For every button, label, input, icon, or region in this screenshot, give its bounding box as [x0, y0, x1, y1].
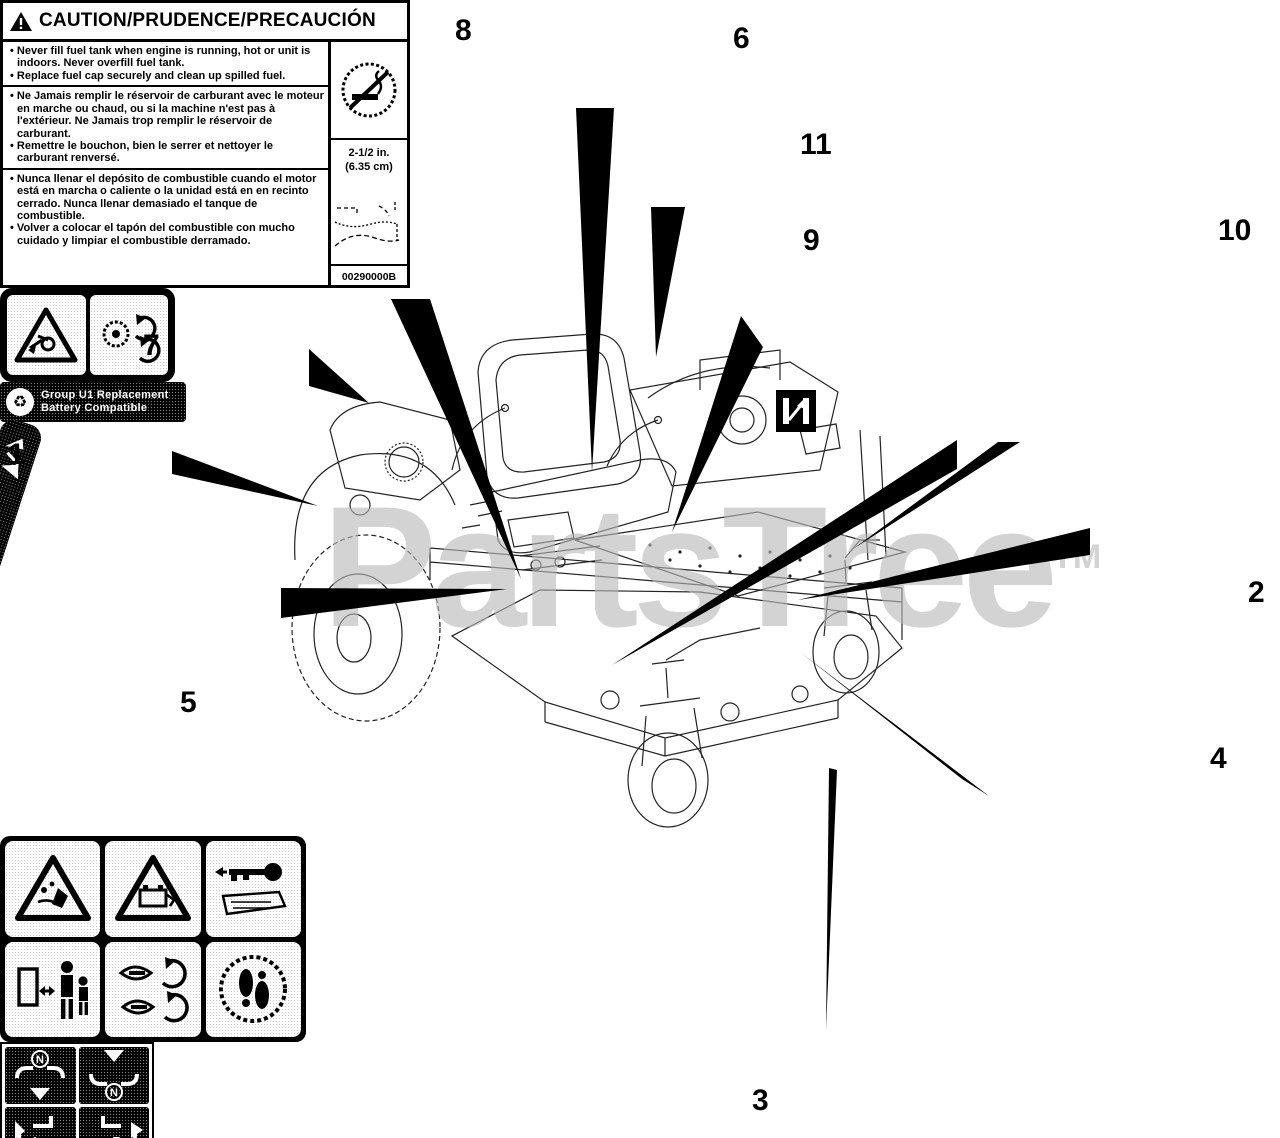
- leader-lines: [0, 0, 1280, 1138]
- callout-9[interactable]: 9: [803, 226, 820, 256]
- callout-5[interactable]: 5: [180, 688, 197, 718]
- callout-2[interactable]: 2: [1248, 578, 1265, 608]
- lever-slot-icon: [776, 390, 816, 432]
- callout-4[interactable]: 4: [1210, 744, 1227, 774]
- callout-8[interactable]: 8: [455, 16, 472, 46]
- callout-7[interactable]: 7: [143, 331, 160, 361]
- callout-10[interactable]: 10: [1218, 216, 1251, 246]
- callout-6[interactable]: 6: [733, 24, 750, 54]
- callout-11[interactable]: 11: [800, 130, 832, 160]
- callout-3[interactable]: 3: [752, 1086, 769, 1116]
- decals-parts-diagram: PartsTreeTM CAUTION/PRUDENCE/PRECAUCIÓN: [0, 0, 1280, 1138]
- callout-1[interactable]: 1: [8, 440, 25, 470]
